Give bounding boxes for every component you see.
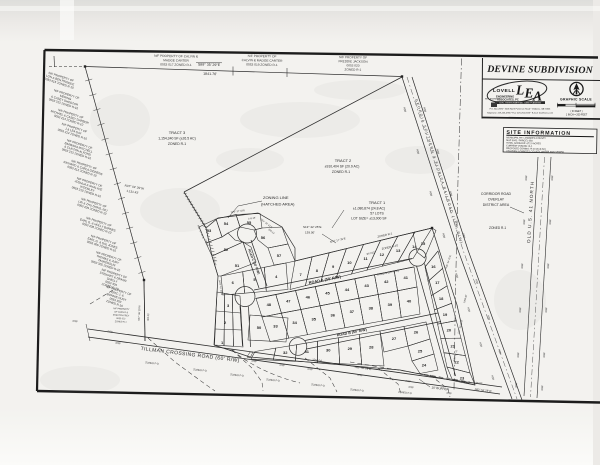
svg-text:REG. ENGINEERS: REG. ENGINEERS xyxy=(485,99,501,101)
svg-text:18: 18 xyxy=(439,296,444,301)
svg-text:R/W: R/W xyxy=(548,219,552,225)
svg-text:40: 40 xyxy=(407,298,412,303)
svg-text:31: 31 xyxy=(305,349,310,354)
svg-text:CIVIL, ENVIRONMENTAL, LAND PLA: CIVIL, ENVIRONMENTAL, LAND PLANNING xyxy=(499,102,541,105)
svg-text:ZONED R-1: ZONED R-1 xyxy=(332,170,350,174)
svg-text:R/W: R/W xyxy=(524,175,528,181)
svg-text:TRACT 3: TRACT 3 xyxy=(169,130,186,135)
svg-text:47: 47 xyxy=(286,298,291,303)
svg-text:37: 37 xyxy=(350,309,355,314)
svg-text:17: 17 xyxy=(435,280,440,285)
svg-text:57 LOTS: 57 LOTS xyxy=(370,212,384,216)
svg-text:TRACT 1: TRACT 1 xyxy=(369,200,386,205)
svg-text:56: 56 xyxy=(261,235,266,240)
svg-text:P.O. Box 2696 • 3006 North P: P.O. Box 2696 • 3006 North Patterson Roa… xyxy=(490,108,551,111)
svg-text:R/W: R/W xyxy=(540,385,544,391)
svg-text:1,154,340 SF (±26.5 AC): 1,154,340 SF (±26.5 AC) xyxy=(158,137,195,141)
svg-text:R/W: R/W xyxy=(542,352,546,358)
svg-text:Telephone: 229-253-0966 • Fax:: Telephone: 229-253-0966 • Fax: 229-253-1… xyxy=(487,113,554,115)
svg-text:33: 33 xyxy=(273,324,278,329)
svg-text:TRACT 2: TRACT 2 xyxy=(335,158,352,163)
svg-text:±910,404 SF (20.9 AC): ±910,404 SF (20.9 AC) xyxy=(325,165,360,169)
svg-text:15: 15 xyxy=(421,241,426,246)
svg-text:41: 41 xyxy=(403,275,408,280)
svg-text:25: 25 xyxy=(418,349,423,354)
svg-text:DEVINE SUBDIVISION: DEVINE SUBDIVISION xyxy=(486,64,593,76)
svg-text:12: 12 xyxy=(380,252,385,257)
svg-text:54: 54 xyxy=(224,221,229,226)
svg-text:S13° 42' 25"E: S13° 42' 25"E xyxy=(303,225,322,229)
svg-text:55: 55 xyxy=(247,220,252,225)
svg-text:DISTRICT AREA: DISTRICT AREA xyxy=(483,203,510,207)
svg-text:OVERLAY: OVERLAY xyxy=(488,198,505,202)
svg-text:14: 14 xyxy=(412,244,417,249)
svg-text:19: 19 xyxy=(443,312,448,317)
svg-text:R/W: R/W xyxy=(516,352,520,358)
svg-text:ZONING LINE: ZONING LINE xyxy=(263,195,289,200)
svg-text:48: 48 xyxy=(267,302,272,307)
svg-text:28: 28 xyxy=(369,345,374,350)
svg-text:R/W: R/W xyxy=(520,263,524,269)
svg-text:26: 26 xyxy=(414,330,419,335)
svg-text:R/W: R/W xyxy=(522,219,526,225)
svg-text:23: 23 xyxy=(460,376,465,381)
svg-text:30: 30 xyxy=(326,347,331,352)
svg-text:(HATCHED AREA): (HATCHED AREA) xyxy=(261,202,295,207)
svg-text:24: 24 xyxy=(422,363,427,368)
svg-text:GRAPHIC SCALE: GRAPHIC SCALE xyxy=(560,98,592,102)
svg-text:R/W: R/W xyxy=(550,175,554,181)
svg-text:ZONED R-1: ZONED R-1 xyxy=(345,68,362,72)
svg-text:38: 38 xyxy=(369,306,374,311)
svg-text:27: 27 xyxy=(392,336,397,341)
svg-text:20: 20 xyxy=(447,328,452,333)
svg-text:ZONED R-1: ZONED R-1 xyxy=(489,226,506,230)
svg-text:16: 16 xyxy=(431,264,436,269)
svg-text:LOVELL: LOVELL xyxy=(493,88,515,94)
svg-text:CORRIDOR ROAD: CORRIDOR ROAD xyxy=(481,192,512,196)
svg-text:32: 32 xyxy=(283,350,288,355)
svg-text:E: E xyxy=(524,86,534,101)
svg-text:±1,080,874 (24.8 AC): ±1,080,874 (24.8 AC) xyxy=(353,207,385,211)
svg-text:42: 42 xyxy=(384,279,389,284)
svg-text:LOT SIZE= ±13,000 SF: LOT SIZE= ±13,000 SF xyxy=(351,217,386,221)
svg-text:R/W: R/W xyxy=(546,263,550,269)
svg-text:300.00': 300.00' xyxy=(147,312,150,320)
svg-text:34: 34 xyxy=(292,320,297,325)
svg-text:39: 39 xyxy=(388,302,393,307)
svg-text:45: 45 xyxy=(325,291,330,296)
svg-text:0053 019 ZONED R-1: 0053 019 ZONED R-1 xyxy=(246,63,278,68)
svg-text:ZONED R-1: ZONED R-1 xyxy=(168,142,186,146)
svg-text:L: L xyxy=(515,83,524,98)
svg-text:S89° 35' 29"E: S89° 35' 29"E xyxy=(198,63,221,68)
svg-text:50: 50 xyxy=(257,325,262,330)
svg-text:21: 21 xyxy=(450,344,455,349)
svg-text:1 INCH = 200 FEET: 1 INCH = 200 FEET xyxy=(566,114,588,117)
svg-text:36: 36 xyxy=(330,313,335,318)
svg-text:53: 53 xyxy=(207,228,212,233)
svg-text:43: 43 xyxy=(364,283,369,288)
svg-text:29: 29 xyxy=(348,346,353,351)
svg-text:44: 44 xyxy=(345,287,350,292)
svg-text:1841.76': 1841.76' xyxy=(203,72,217,76)
svg-text:35: 35 xyxy=(311,316,316,321)
svg-text:13: 13 xyxy=(396,248,401,253)
svg-text:R/W: R/W xyxy=(514,382,518,388)
svg-text:57: 57 xyxy=(277,253,282,258)
svg-text:22: 22 xyxy=(454,359,459,364)
svg-text:51: 51 xyxy=(235,263,240,268)
svg-text:139.00': 139.00' xyxy=(305,231,315,235)
svg-text:10: 10 xyxy=(347,260,352,265)
svg-text:46: 46 xyxy=(306,295,311,300)
svg-text:0053 017 ZONED R-1: 0053 017 ZONED R-1 xyxy=(160,63,192,68)
